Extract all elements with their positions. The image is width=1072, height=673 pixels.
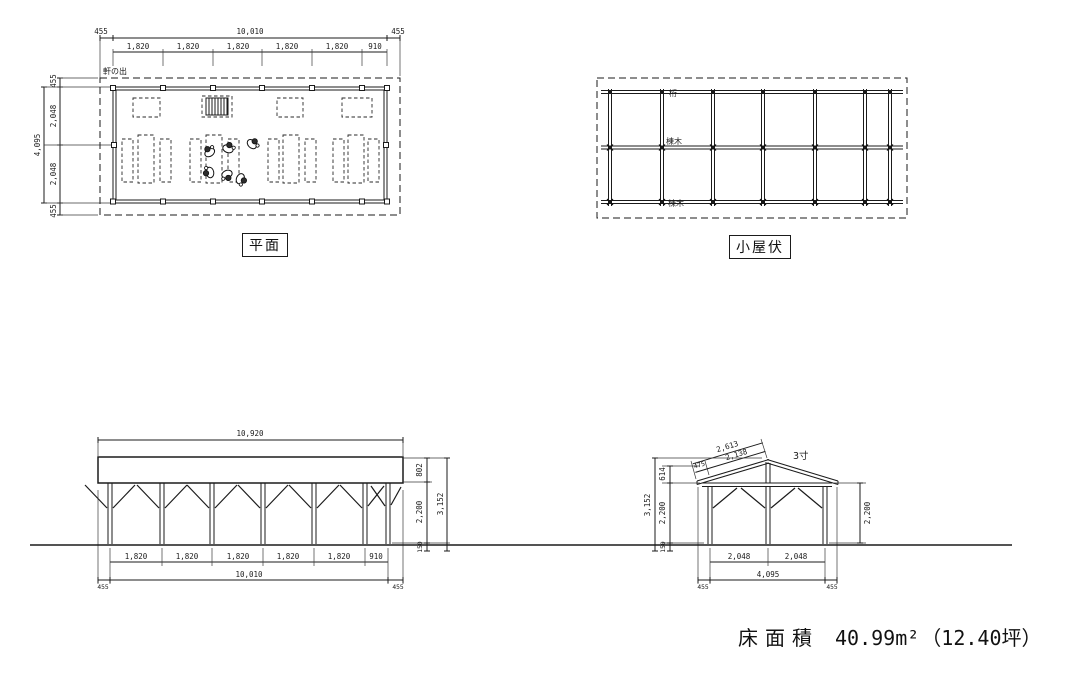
person-figure bbox=[245, 136, 261, 152]
dim-side-bay-1: 2,048 bbox=[728, 552, 751, 561]
dim-side-roof-rise: 614 bbox=[658, 467, 667, 481]
roof-plan-title: 小屋伏 bbox=[729, 235, 791, 259]
roof-pitch-label: 3寸 bbox=[793, 450, 809, 462]
person-figure bbox=[222, 141, 237, 155]
drawing-canvas: 455 10,010 455 1,820 1,820 1,820 1,820 1… bbox=[0, 0, 1072, 673]
dim-side-eave-right: 455 bbox=[826, 584, 838, 591]
dim-plan-bay-4: 1,820 bbox=[276, 42, 299, 51]
floor-plan-view: 455 10,010 455 1,820 1,820 1,820 1,820 1… bbox=[33, 27, 405, 218]
front-braces bbox=[85, 485, 401, 508]
dim-front-wall-height: 2,200 bbox=[415, 500, 424, 523]
dim-front-bay-5: 1,820 bbox=[328, 552, 351, 561]
dim-plan-eave-bottom: 455 bbox=[49, 204, 58, 218]
dim-front-bay-1: 1,820 bbox=[125, 552, 148, 561]
dim-front-bay-4: 1,820 bbox=[277, 552, 300, 561]
dim-plan-bay-5: 1,820 bbox=[326, 42, 349, 51]
dim-plan-overall-width: 10,010 bbox=[236, 27, 264, 36]
side-slope-dims: 475 2,138 2,613 bbox=[691, 439, 767, 479]
dim-plan-depth-bay-1: 2,048 bbox=[49, 104, 58, 127]
dim-front-overall-height: 3,152 bbox=[436, 493, 445, 516]
dim-plan-depth-bay-2: 2,048 bbox=[49, 162, 58, 185]
dim-plan-bay-1: 1,820 bbox=[127, 42, 150, 51]
roof-framing-view: 桁 棟木 棟木 bbox=[597, 78, 907, 218]
floor-area-label: 床面積 bbox=[738, 626, 819, 650]
floor-area-tsubo: （12.40坪） bbox=[921, 626, 1041, 650]
dim-side-eave-left: 455 bbox=[697, 584, 709, 591]
dim-plan-bay-3: 1,820 bbox=[227, 42, 250, 51]
dim-front-base-height: 150 bbox=[417, 541, 424, 553]
dim-side-eave-slope: 475 bbox=[693, 460, 706, 470]
cad-drawing-sheet: 455 10,010 455 1,820 1,820 1,820 1,820 1… bbox=[0, 0, 1072, 673]
dim-front-bay-3: 1,820 bbox=[227, 552, 250, 561]
floor-area-note: 床面積40.99m²（12.40坪） bbox=[738, 622, 1042, 651]
dim-side-overall-height: 3,152 bbox=[643, 494, 652, 517]
floor-plan-title: 平面 bbox=[242, 233, 288, 257]
roof-joint-marks bbox=[607, 90, 893, 205]
dim-side-wall-height: 2,200 bbox=[658, 501, 667, 524]
dim-front-eave-left: 455 bbox=[97, 584, 109, 591]
dim-plan-eave-right: 455 bbox=[391, 27, 405, 36]
ridge-beam-label-2: 棟木 bbox=[668, 198, 684, 208]
side-elevation-view: 475 2,138 2,613 3寸 3,152 614 2,200 150 2… bbox=[643, 439, 872, 591]
eave-overhang-label: 軒の出 bbox=[103, 66, 127, 76]
dim-front-bay-2: 1,820 bbox=[176, 552, 199, 561]
dim-side-bay-2: 2,048 bbox=[785, 552, 808, 561]
front-columns bbox=[108, 483, 390, 544]
plan-furniture-top-row bbox=[133, 96, 372, 117]
dim-front-fascia-height: 802 bbox=[415, 463, 424, 477]
ridge-beam-label: 棟木 bbox=[666, 136, 682, 146]
dim-side-overall-width: 4,095 bbox=[757, 570, 780, 579]
dim-side-right-wall-height: 2,200 bbox=[863, 501, 872, 524]
dim-plan-bay-6: 910 bbox=[368, 42, 382, 51]
roof-eave-outline bbox=[597, 78, 907, 218]
side-posts bbox=[708, 462, 827, 544]
dim-front-roof-width: 10,920 bbox=[236, 429, 264, 438]
dim-front-eave-right: 455 bbox=[392, 584, 404, 591]
dim-plan-eave-left: 455 bbox=[94, 27, 108, 36]
front-elevation-view: 10,920 802 2,200 150 bbox=[85, 429, 450, 591]
plan-people bbox=[202, 136, 262, 188]
floor-area-value: 40.99m² bbox=[835, 626, 919, 650]
person-figure bbox=[202, 165, 214, 179]
side-braces bbox=[713, 488, 822, 508]
dim-plan-bay-2: 1,820 bbox=[177, 42, 200, 51]
dim-plan-eave-top: 455 bbox=[49, 74, 58, 88]
girder-label: 桁 bbox=[669, 88, 677, 98]
dim-side-base-height: 150 bbox=[660, 541, 667, 553]
dim-front-overall-width: 10,010 bbox=[235, 570, 263, 579]
dim-plan-overall-depth: 4,095 bbox=[33, 134, 42, 157]
dim-front-bay-6: 910 bbox=[369, 552, 383, 561]
front-roof-fascia bbox=[98, 457, 403, 483]
person-figure bbox=[202, 143, 218, 158]
person-figure bbox=[234, 172, 249, 187]
roof-rafters bbox=[609, 89, 892, 206]
